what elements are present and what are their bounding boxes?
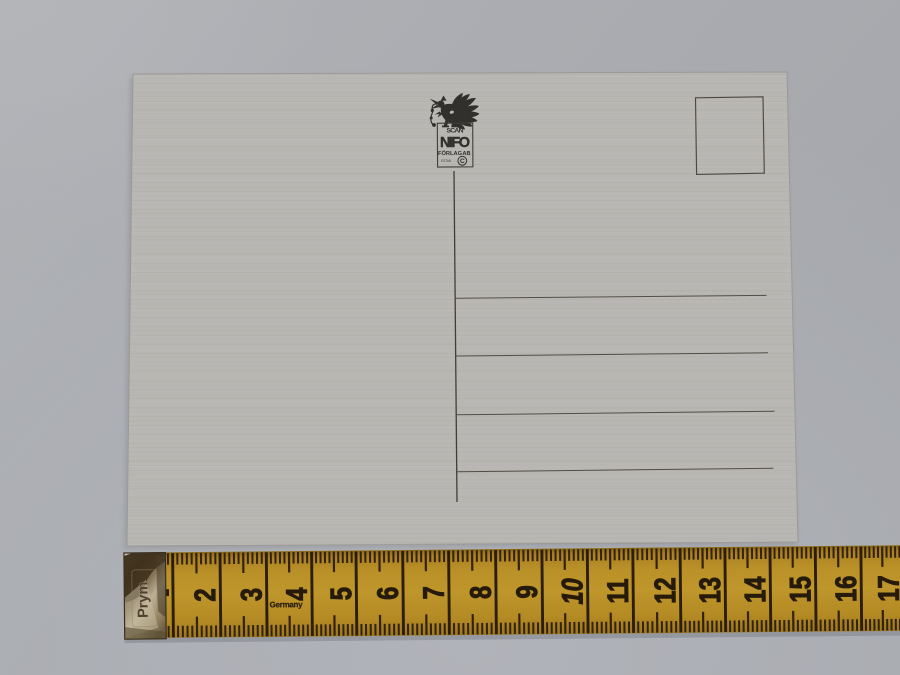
svg-text:16: 16 (829, 576, 862, 603)
svg-text:NIFO: NIFO (440, 135, 470, 151)
svg-text:SCAN: SCAN (447, 128, 464, 135)
svg-text:6: 6 (371, 587, 404, 600)
svg-text:8: 8 (464, 586, 497, 600)
svg-text:17: 17 (872, 575, 900, 602)
svg-text:2: 2 (189, 588, 222, 601)
svg-text:4: 4 (280, 587, 313, 601)
svg-text:11: 11 (601, 578, 634, 603)
svg-text:15: 15 (784, 576, 817, 603)
svg-text:9: 9 (510, 585, 543, 598)
svg-text:ESTAB: ESTAB (441, 159, 451, 163)
svg-text:5: 5 (325, 587, 358, 601)
svg-text:10: 10 (556, 578, 589, 605)
svg-text:13: 13 (693, 577, 726, 604)
svg-text:C: C (460, 158, 465, 165)
svg-text:Germany: Germany (270, 600, 304, 609)
svg-text:3: 3 (235, 588, 268, 601)
svg-text:14: 14 (738, 576, 771, 603)
svg-text:12: 12 (649, 577, 682, 604)
svg-text:Prym: Prym (135, 582, 151, 618)
svg-text:7: 7 (417, 586, 450, 599)
svg-text:FÖRLAG: FÖRLAG (438, 150, 463, 157)
